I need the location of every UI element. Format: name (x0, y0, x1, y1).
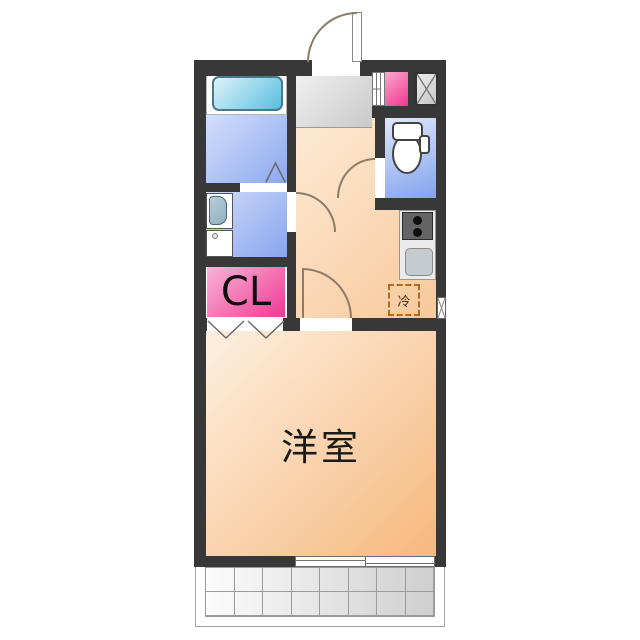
balcony-tile (377, 568, 406, 592)
toilet-icon (390, 121, 434, 177)
balcony-tile (235, 568, 264, 592)
meter-box-icon (437, 297, 446, 319)
wall-bath-washroom (206, 183, 240, 192)
balcony-tiles (205, 567, 435, 617)
wall-bath-hall-upper (287, 60, 296, 192)
closet: CL (207, 267, 285, 317)
room-door-opening (300, 318, 352, 331)
balcony-tile (263, 592, 292, 616)
closet-folding-doors-icon (207, 319, 285, 340)
stove-burner-icon (413, 216, 422, 225)
bathtub-icon (212, 76, 283, 111)
pipe-space-icon (415, 72, 438, 106)
balcony-tile (292, 568, 321, 592)
stove-burner-icon (413, 228, 422, 237)
window-sash-tick (365, 557, 366, 566)
balcony-tile (206, 568, 235, 592)
wall-washroom-closet (194, 257, 296, 267)
balcony-tile (320, 568, 349, 592)
refrigerator-space: 冷 (388, 284, 420, 316)
western-room: 洋室 (206, 331, 436, 556)
window-sash (296, 560, 366, 561)
balcony-tile (349, 568, 378, 592)
shoe-cabinet (385, 72, 408, 106)
wall-toilet-bottom (375, 198, 436, 210)
refrigerator-label: 冷 (397, 291, 410, 310)
gas-stove-icon (402, 212, 433, 240)
balcony-tile (406, 592, 435, 616)
toilet-door-opening (375, 158, 385, 198)
closet-label: CL (221, 269, 271, 315)
wall-bath-hall-lower (287, 232, 296, 331)
balcony-tile (377, 592, 406, 616)
entrance-door-swing-icon (307, 12, 357, 62)
washroom-door-opening (287, 192, 296, 232)
entrance-cabinet-icon (372, 72, 385, 106)
western-room-label: 洋室 (281, 417, 361, 471)
folding-door-mark-icon (264, 160, 287, 184)
balcony-tile (406, 568, 435, 592)
balcony-tile (263, 568, 292, 592)
washing-machine-pan-icon (206, 230, 233, 257)
wall-bottom-left (194, 556, 295, 567)
drain-icon (212, 233, 218, 239)
washbasin-bowl-icon (209, 196, 227, 225)
entrance-door-opening (312, 60, 360, 76)
window-sash (365, 563, 435, 564)
entrance-floor (296, 76, 372, 128)
balcony-tile (320, 592, 349, 616)
bathroom-door-opening (240, 183, 287, 192)
balcony-tile (206, 592, 235, 616)
wall-bottom-right (435, 556, 446, 567)
balcony-tile (292, 592, 321, 616)
wall-left (194, 60, 206, 567)
sliding-window-icon (295, 556, 435, 567)
kitchen-sink-icon (405, 248, 433, 276)
balcony-tile (235, 592, 264, 616)
balcony-tile (349, 592, 378, 616)
floorplan: CL 洋室 冷 (0, 0, 640, 640)
